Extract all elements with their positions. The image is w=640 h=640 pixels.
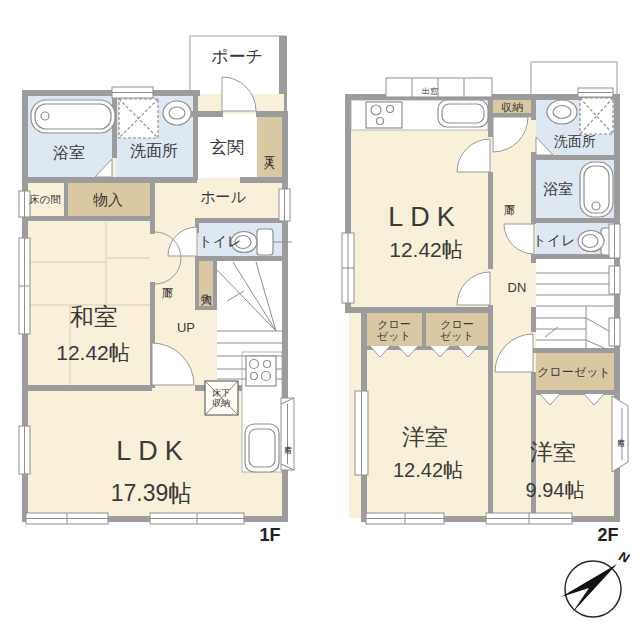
closet-right-label: クローゼット (537, 366, 610, 378)
washroom-label-2f: 洗面所 (554, 134, 596, 148)
compass-icon (561, 561, 621, 617)
toilet-icon-1f (257, 229, 273, 255)
bay-window-right-label: 出窓 (617, 432, 625, 434)
western-room1-size: 12.42帖 (393, 460, 463, 480)
western-room1-label: 洋室 (402, 426, 448, 449)
hall-label: ホール (200, 189, 246, 204)
porch-label: ポーチ (211, 48, 263, 65)
ldk-size-2f: 12.42帖 (389, 239, 463, 260)
shoe-storage-label: 下足入 (264, 147, 275, 150)
stairs-down-label: DN (508, 281, 527, 294)
storage-stairs-label: 物入 (201, 284, 212, 286)
ldk-size-1f: 17.39帖 (111, 482, 192, 505)
floor1-label: 1F (259, 526, 280, 544)
entrance-label: 玄関 (210, 139, 244, 156)
washroom-label-1f: 洗面所 (130, 143, 178, 159)
ldk-label-2f: LDK (388, 204, 462, 231)
western-room2-label: 洋室 (530, 441, 576, 464)
floor2-plan (342, 62, 628, 524)
underfloor-storage-label: 床下収納 (212, 388, 230, 408)
storage-hall-label: 物入 (93, 192, 123, 207)
storage-label-2f: 収納 (501, 102, 523, 113)
bay-window-2f-right (612, 396, 628, 472)
japanese-room-size: 12.42帖 (56, 342, 130, 363)
toilet-label-2f: トイレ (533, 233, 576, 247)
toilet-label-1f: トイレ (199, 234, 242, 248)
floor2-label: 2F (597, 526, 618, 544)
japanese-room-label: 和室 (70, 305, 118, 329)
closet-left-label: クローゼット (377, 318, 411, 343)
floorplan-canvas: ポーチ 浴室 洗面所 玄関 下足入 床の間 物入 ホール トイレ 廊下 物入 U… (0, 0, 640, 640)
bay-window-top-label: 出窓 (422, 88, 438, 96)
stove-icon-2f (366, 102, 402, 128)
stairs-up-label: UP (177, 321, 195, 334)
bathroom-label-1f: 浴室 (53, 145, 85, 161)
western-room2-size: 9.94帖 (526, 480, 585, 500)
bay-window-label-1f: 出窓 (284, 439, 292, 441)
closet-mid-label: クローゼット (440, 318, 474, 343)
tokonoma-label: 床の間 (29, 194, 61, 205)
corridor-label-1f: 廊下 (162, 278, 173, 280)
bathroom-label-2f: 浴室 (543, 181, 573, 196)
corridor-label-2f: 廊下 (504, 195, 515, 197)
bay-window-2f-top (386, 78, 492, 97)
ldk-label-1f: LDK (116, 438, 190, 465)
